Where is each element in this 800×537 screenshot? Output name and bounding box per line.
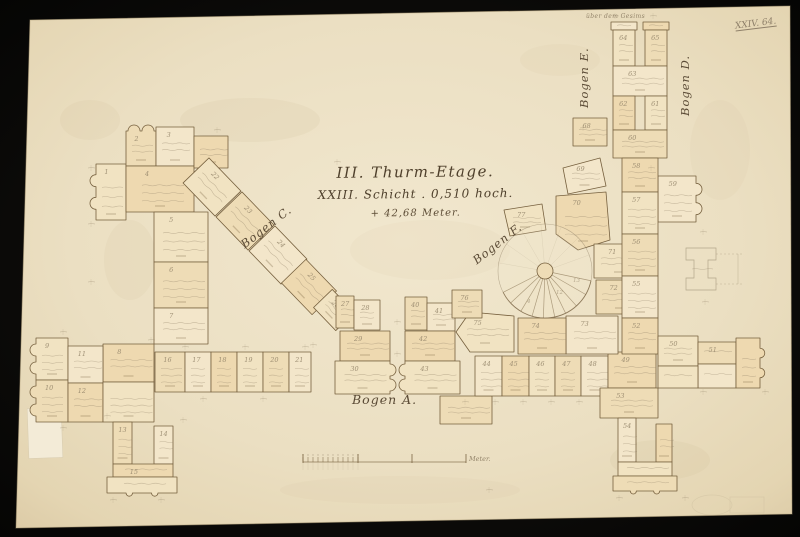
stone-block: 74 [518, 318, 566, 354]
svg-text:19: 19 [244, 356, 252, 364]
stone-block: 63 [613, 66, 667, 96]
stone-block [618, 462, 672, 476]
stone-block: 19 [237, 352, 263, 392]
svg-text:4: 4 [144, 170, 149, 178]
svg-text:20: 20 [269, 356, 278, 364]
stone-block: 7 [154, 308, 208, 344]
svg-text:47: 47 [561, 360, 571, 368]
stone-block: 20 [263, 352, 289, 392]
svg-text:41: 41 [434, 307, 443, 315]
svg-text:27: 27 [340, 300, 350, 308]
stone-block: 3 [156, 127, 194, 166]
stone-block [656, 424, 674, 462]
stone-block: 4 [126, 166, 194, 212]
svg-text:17: 17 [192, 356, 201, 364]
svg-text:49: 49 [620, 356, 629, 364]
stone-block: 41 [427, 303, 455, 331]
stone-block: 43 [399, 361, 460, 394]
stone-block: 65 [645, 30, 667, 66]
stone-block: 64 [613, 30, 635, 66]
stone-block: 54 [618, 418, 637, 462]
title-line-2: XXIII. Schicht . 0,510 hoch. [308, 186, 523, 202]
svg-text:46: 46 [535, 360, 544, 368]
svg-text:50: 50 [669, 340, 677, 348]
stone-block: 60 [613, 130, 667, 158]
svg-text:42: 42 [418, 335, 427, 343]
svg-text:76: 76 [460, 294, 468, 302]
stone-block: 62 [613, 96, 635, 130]
svg-text:28: 28 [360, 304, 369, 312]
svg-text:8: 8 [117, 348, 121, 356]
svg-text:55: 55 [632, 280, 640, 288]
svg-text:44: 44 [482, 360, 491, 368]
svg-text:11: 11 [78, 350, 86, 358]
stone-block: 8 [103, 344, 154, 382]
stone-block [643, 22, 669, 30]
stone-block [658, 366, 698, 388]
svg-text:74: 74 [531, 322, 539, 330]
svg-text:59: 59 [669, 180, 677, 188]
stone-block: 21 [289, 352, 311, 392]
svg-text:10: 10 [45, 384, 53, 392]
svg-text:72: 72 [609, 284, 617, 292]
svg-text:13: 13 [573, 278, 580, 284]
stone-block: 55 [622, 276, 658, 318]
svg-text:60: 60 [628, 134, 636, 142]
stone-block: 13 [113, 422, 133, 464]
svg-text:2: 2 [133, 135, 138, 143]
stone-block: 12 [68, 383, 103, 422]
stone-block: 16 [155, 352, 185, 392]
svg-text:45: 45 [509, 360, 518, 368]
svg-text:13: 13 [118, 426, 126, 434]
stone-block: 58 [622, 158, 658, 192]
stone-block: 53 [600, 388, 658, 418]
svg-text:4: 4 [526, 299, 531, 305]
stone-block: 18 [211, 352, 237, 392]
stone-block: 27 [336, 296, 355, 328]
svg-text:68: 68 [583, 122, 591, 130]
stone-block [698, 364, 736, 388]
svg-text:21: 21 [294, 356, 303, 364]
stone-block: 6 [154, 262, 208, 308]
stone-block: 57 [622, 192, 658, 234]
stone-block: 45 [502, 356, 529, 396]
svg-text:61: 61 [651, 100, 659, 108]
stone-block: 52 [622, 318, 658, 354]
stone-block: 28 [354, 300, 380, 330]
scan-background: 1234567891011121314151617181920212223242… [0, 0, 800, 537]
svg-text:40: 40 [410, 301, 419, 309]
svg-text:54: 54 [623, 422, 631, 430]
svg-text:70: 70 [572, 199, 580, 207]
svg-text:16: 16 [163, 356, 171, 364]
svg-text:51: 51 [709, 346, 717, 354]
stone-block: 73 [566, 316, 618, 354]
stone-block: 11 [68, 346, 103, 383]
drawing-title: III. Thurm-Etage. XXIII. Schicht . 0,510… [308, 162, 524, 220]
stone-block: 76 [452, 290, 482, 318]
stone-block: 49 [608, 352, 656, 388]
stone-block: 47 [555, 356, 581, 396]
stone-block [107, 477, 177, 496]
svg-text:3: 3 [167, 131, 171, 139]
stone-block: 61 [645, 96, 667, 130]
svg-text:64: 64 [619, 34, 627, 42]
stone-block: 40 [405, 297, 427, 330]
title-line-3: + 42,68 Meter. [308, 207, 523, 220]
stone-block: 46 [529, 356, 555, 396]
svg-text:52: 52 [632, 322, 640, 330]
stone-block: 2 [126, 125, 156, 166]
svg-text:6: 6 [169, 266, 173, 274]
spiral-staircase: 41213 [498, 224, 592, 318]
svg-text:18: 18 [218, 356, 226, 364]
svg-text:29: 29 [353, 335, 362, 343]
svg-text:9: 9 [45, 342, 49, 350]
svg-text:12: 12 [556, 290, 563, 296]
stone-block: 9 [30, 338, 68, 380]
stone-block: 42 [405, 331, 455, 361]
svg-text:53: 53 [616, 392, 624, 400]
stone-block [440, 396, 492, 424]
stone-block: 50 [658, 336, 698, 366]
title-line-1: III. Thurm-Etage. [308, 162, 523, 182]
stone-block: 30 [335, 361, 396, 394]
stone-block: 56 [622, 234, 658, 276]
svg-text:75: 75 [474, 319, 482, 327]
svg-text:65: 65 [651, 34, 659, 42]
svg-text:71: 71 [608, 248, 616, 256]
svg-text:56: 56 [632, 238, 640, 246]
stone-block: 15 [113, 464, 173, 477]
stone-block: 14 [154, 426, 174, 464]
svg-text:30: 30 [350, 365, 358, 373]
stone-block: 5 [154, 212, 208, 262]
svg-text:58: 58 [632, 162, 640, 170]
svg-text:1: 1 [104, 168, 108, 176]
svg-text:12: 12 [78, 387, 86, 395]
svg-text:57: 57 [632, 196, 641, 204]
stone-block: 68 [573, 118, 607, 146]
stone-block: 29 [340, 331, 390, 361]
plan-drawing: 1234567891011121314151617181920212223242… [0, 0, 800, 537]
stone-block: 44 [475, 356, 502, 396]
svg-text:43: 43 [419, 365, 428, 373]
svg-text:48: 48 [588, 360, 597, 368]
stone-block: 51 [698, 342, 736, 364]
stone-block [613, 476, 677, 494]
svg-text:69: 69 [576, 165, 584, 173]
stone-block: 10 [30, 380, 68, 422]
stone-block: 59 [658, 176, 702, 222]
svg-text:14: 14 [159, 430, 167, 438]
svg-text:63: 63 [628, 70, 636, 78]
svg-text:73: 73 [581, 320, 589, 328]
svg-text:5: 5 [169, 216, 173, 224]
stone-block [611, 22, 637, 30]
stone-block: 17 [185, 352, 211, 392]
svg-text:62: 62 [619, 100, 627, 108]
